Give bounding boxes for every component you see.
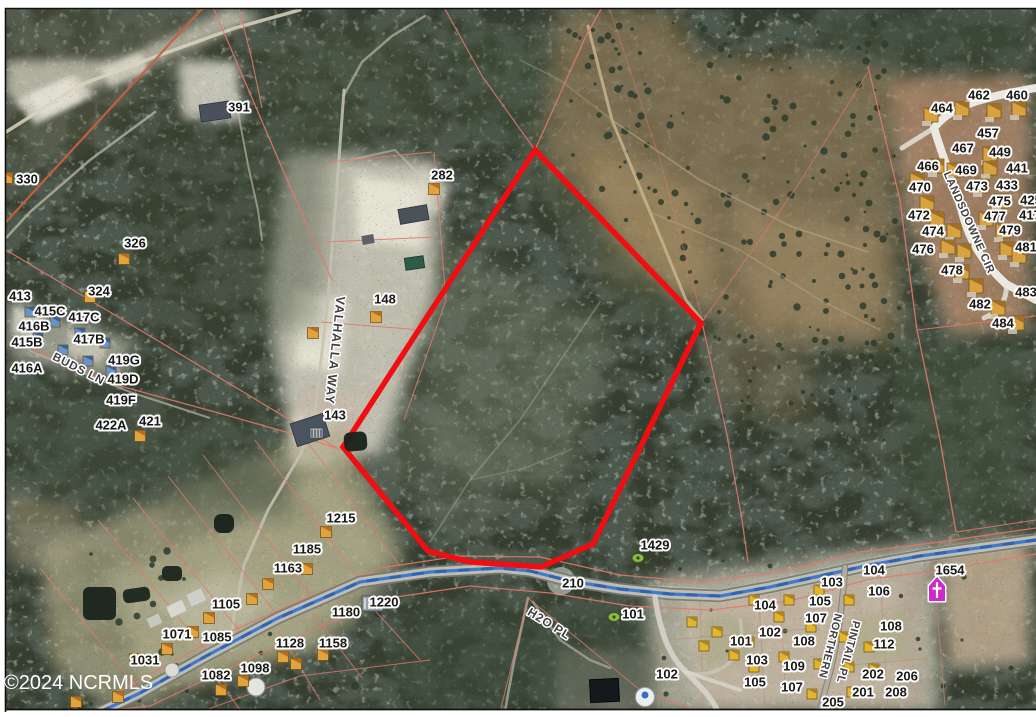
svg-text:464: 464: [931, 101, 953, 116]
svg-text:201: 201: [852, 685, 874, 700]
svg-text:478: 478: [941, 263, 963, 278]
svg-text:457: 457: [977, 126, 999, 141]
svg-text:102: 102: [656, 667, 678, 682]
svg-text:470: 470: [909, 180, 931, 195]
svg-text:415B: 415B: [11, 335, 42, 350]
svg-text:475: 475: [989, 194, 1011, 209]
svg-text:477: 477: [984, 209, 1006, 224]
svg-text:143: 143: [324, 408, 346, 423]
svg-text:481: 481: [1015, 240, 1036, 255]
svg-text:104: 104: [754, 598, 776, 613]
svg-text:101: 101: [730, 634, 752, 649]
svg-text:1128: 1128: [276, 636, 304, 651]
svg-text:1429: 1429: [641, 538, 670, 553]
svg-text:326: 326: [124, 236, 146, 251]
svg-text:415C: 415C: [34, 304, 66, 319]
svg-text:1185: 1185: [293, 542, 321, 557]
svg-text:1180: 1180: [332, 605, 360, 620]
svg-text:449: 449: [989, 145, 1011, 160]
svg-text:1082: 1082: [202, 668, 231, 683]
svg-text:476: 476: [912, 242, 934, 257]
svg-text:417C: 417C: [68, 310, 100, 325]
svg-text:391: 391: [228, 100, 250, 115]
svg-text:1071: 1071: [163, 627, 192, 642]
svg-text:282: 282: [431, 168, 453, 183]
svg-text:208: 208: [885, 685, 907, 700]
svg-text:324: 324: [88, 284, 110, 299]
svg-text:1654: 1654: [936, 563, 966, 578]
svg-text:413: 413: [9, 289, 31, 304]
svg-text:104: 104: [863, 563, 885, 578]
svg-text:473: 473: [966, 179, 988, 194]
svg-text:107: 107: [805, 611, 827, 626]
svg-text:419F: 419F: [106, 393, 136, 408]
svg-text:103: 103: [821, 575, 843, 590]
svg-text:210: 210: [562, 576, 584, 591]
svg-text:422A: 422A: [95, 418, 127, 433]
svg-text:©2024 NCRMLS: ©2024 NCRMLS: [4, 672, 153, 694]
svg-text:466: 466: [917, 159, 939, 174]
svg-text:416B: 416B: [18, 319, 49, 334]
svg-text:421: 421: [139, 414, 161, 429]
svg-text:205: 205: [822, 695, 844, 710]
svg-text:460: 460: [1006, 88, 1028, 103]
svg-text:330: 330: [16, 172, 38, 187]
svg-text:425: 425: [1020, 193, 1036, 208]
svg-text:474: 474: [922, 224, 944, 239]
svg-text:108: 108: [880, 619, 902, 634]
svg-text:469: 469: [955, 163, 977, 178]
svg-text:416A: 416A: [11, 361, 43, 376]
svg-text:108: 108: [793, 634, 815, 649]
svg-text:148: 148: [374, 292, 396, 307]
svg-text:107: 107: [781, 680, 803, 695]
svg-text:1158: 1158: [319, 636, 347, 651]
svg-text:112: 112: [874, 637, 895, 652]
svg-text:106: 106: [868, 584, 890, 599]
svg-text:482: 482: [969, 297, 991, 312]
svg-text:479: 479: [999, 223, 1021, 238]
svg-text:484: 484: [992, 316, 1014, 331]
svg-text:101: 101: [622, 607, 644, 622]
svg-text:105: 105: [809, 594, 831, 609]
svg-text:419G: 419G: [108, 353, 140, 368]
svg-text:102: 102: [759, 625, 781, 640]
svg-text:419D: 419D: [107, 372, 138, 387]
svg-text:483: 483: [1015, 285, 1036, 300]
svg-text:1098: 1098: [241, 661, 270, 676]
svg-text:417: 417: [1019, 208, 1036, 223]
svg-text:1105: 1105: [212, 597, 240, 612]
svg-text:1085: 1085: [203, 630, 232, 645]
svg-text:109: 109: [783, 659, 805, 674]
svg-text:206: 206: [896, 669, 918, 684]
svg-text:202: 202: [862, 667, 884, 682]
svg-text:105: 105: [744, 675, 766, 690]
svg-text:417B: 417B: [73, 332, 104, 347]
svg-text:472: 472: [908, 208, 930, 223]
svg-text:103: 103: [746, 653, 768, 668]
svg-text:433: 433: [996, 178, 1018, 193]
svg-text:441: 441: [1006, 161, 1028, 176]
svg-text:1220: 1220: [370, 595, 399, 610]
svg-text:467: 467: [952, 141, 974, 156]
svg-text:462: 462: [968, 88, 990, 103]
svg-text:1215: 1215: [327, 511, 356, 526]
svg-text:1031: 1031: [131, 653, 160, 668]
svg-text:1163: 1163: [274, 561, 302, 576]
